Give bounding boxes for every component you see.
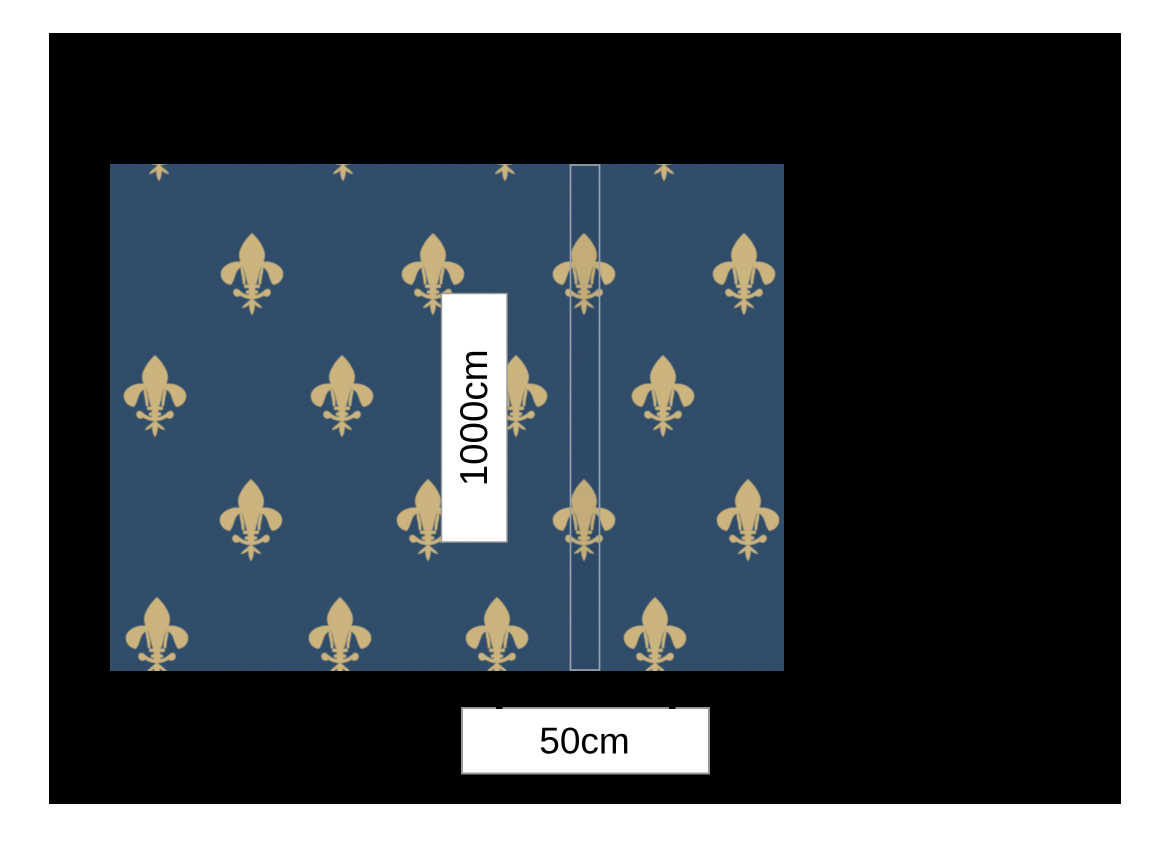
svg-text:50cm: 50cm bbox=[539, 721, 629, 762]
svg-text:1000cm: 1000cm bbox=[453, 349, 496, 486]
